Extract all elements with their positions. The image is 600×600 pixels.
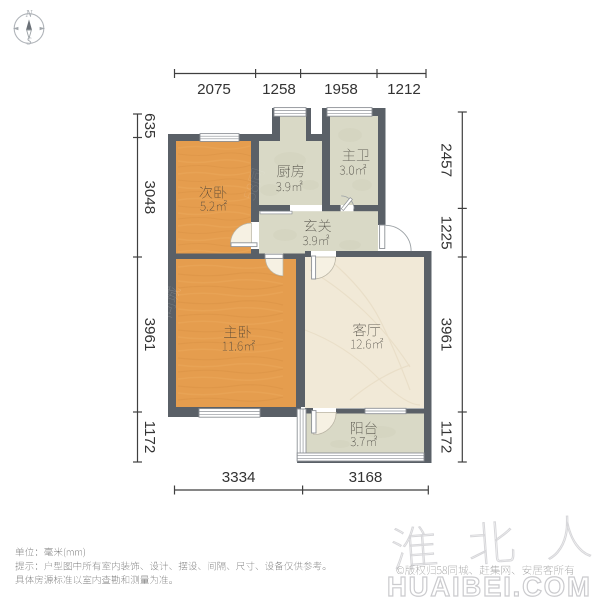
svg-text:HUAIBEI.COM: HUAIBEI.COM [387, 571, 592, 600]
svg-text:1212: 1212 [387, 81, 421, 98]
svg-text:2075: 2075 [197, 81, 231, 98]
svg-text:2457: 2457 [438, 143, 455, 177]
svg-text:635: 635 [141, 113, 158, 138]
svg-text:3168: 3168 [349, 469, 383, 486]
svg-text:S: S [27, 36, 32, 47]
svg-text:1172: 1172 [438, 421, 455, 454]
svg-text:3334: 3334 [222, 469, 256, 486]
svg-text:3048: 3048 [141, 180, 158, 214]
svg-text:1258: 1258 [262, 81, 296, 98]
svg-text:1225: 1225 [438, 216, 455, 250]
svg-text:3961: 3961 [141, 318, 158, 352]
svg-text:1958: 1958 [324, 81, 358, 98]
svg-text:1172: 1172 [141, 421, 158, 454]
svg-text:N: N [25, 9, 34, 20]
svg-text:3961: 3961 [438, 318, 455, 352]
